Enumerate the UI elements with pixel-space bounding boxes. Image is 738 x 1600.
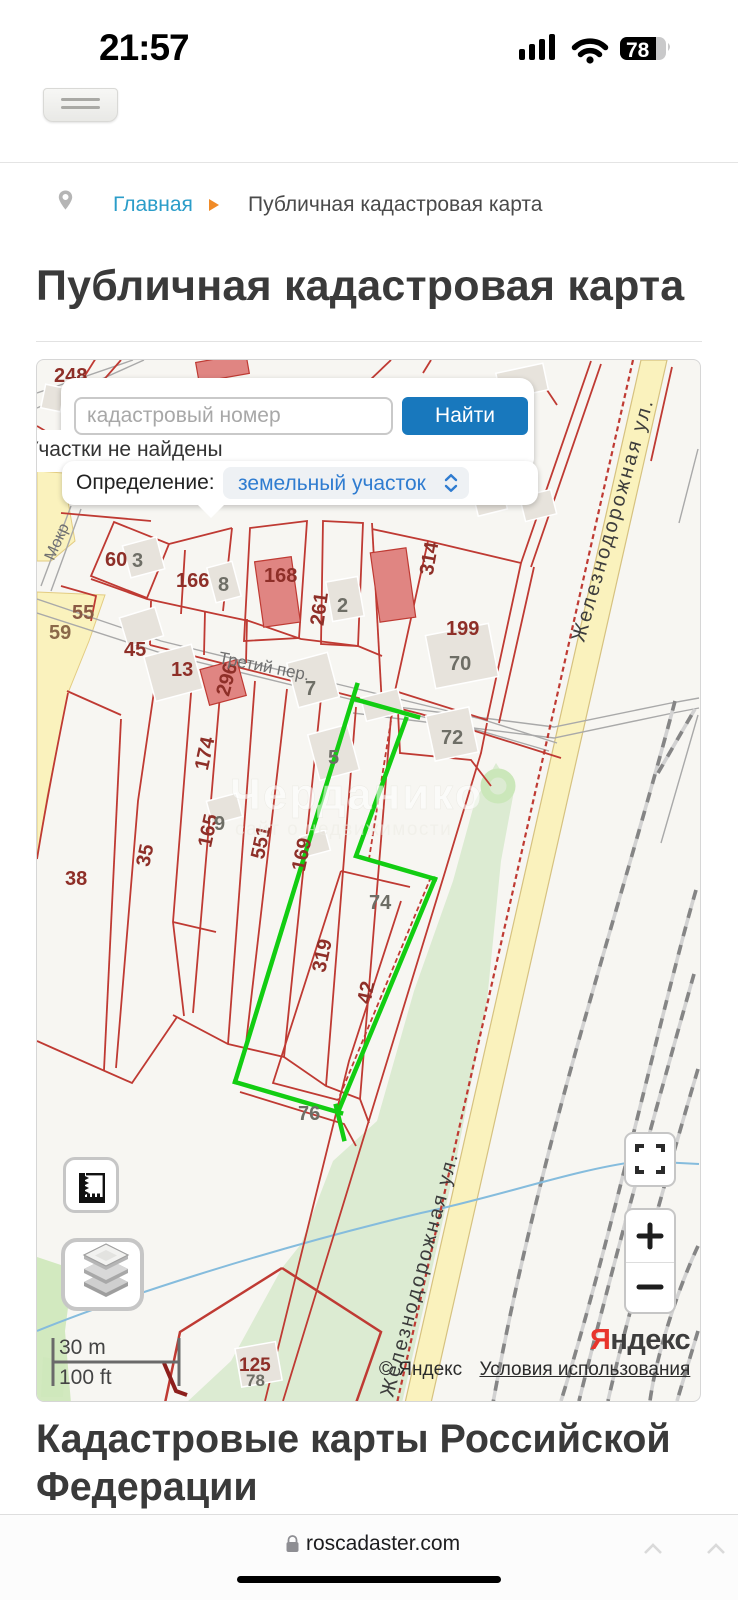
svg-text:78: 78 [626, 39, 650, 62]
svg-text:199: 199 [446, 618, 479, 640]
svg-text:55: 55 [72, 602, 94, 624]
svg-text:70: 70 [449, 653, 471, 675]
svg-text:2: 2 [337, 595, 348, 617]
svg-text:42: 42 [353, 979, 379, 1005]
svg-text:169: 169 [288, 836, 316, 873]
svg-text:45: 45 [124, 639, 146, 661]
svg-text:3: 3 [132, 550, 143, 572]
svg-text:38: 38 [65, 868, 87, 890]
svg-text:74: 74 [369, 892, 392, 914]
svg-text:72: 72 [441, 727, 463, 749]
svg-text:5: 5 [328, 747, 339, 769]
svg-text:Железнодорожная ул.: Железнодорожная ул. [568, 395, 659, 644]
svg-text:314: 314 [416, 539, 444, 577]
svg-text:76: 76 [298, 1103, 320, 1125]
svg-text:78: 78 [246, 1371, 265, 1390]
svg-text:319: 319 [308, 937, 336, 974]
svg-text:сайт о недвижимости: сайт о недвижимости [235, 819, 452, 840]
svg-text:Черданико: Черданико [230, 770, 484, 819]
svg-text:30 m: 30 m [59, 1336, 106, 1359]
svg-text:60: 60 [105, 549, 127, 571]
svg-text:13: 13 [171, 659, 193, 681]
svg-text:59: 59 [49, 622, 71, 644]
svg-text:9: 9 [214, 813, 225, 835]
svg-text:8: 8 [218, 574, 229, 596]
svg-text:166: 166 [176, 570, 209, 592]
svg-text:168: 168 [264, 565, 297, 587]
svg-text:174: 174 [191, 734, 220, 772]
svg-text:261: 261 [307, 591, 333, 627]
svg-text:35: 35 [132, 842, 158, 868]
svg-text:100 ft: 100 ft [59, 1366, 112, 1389]
